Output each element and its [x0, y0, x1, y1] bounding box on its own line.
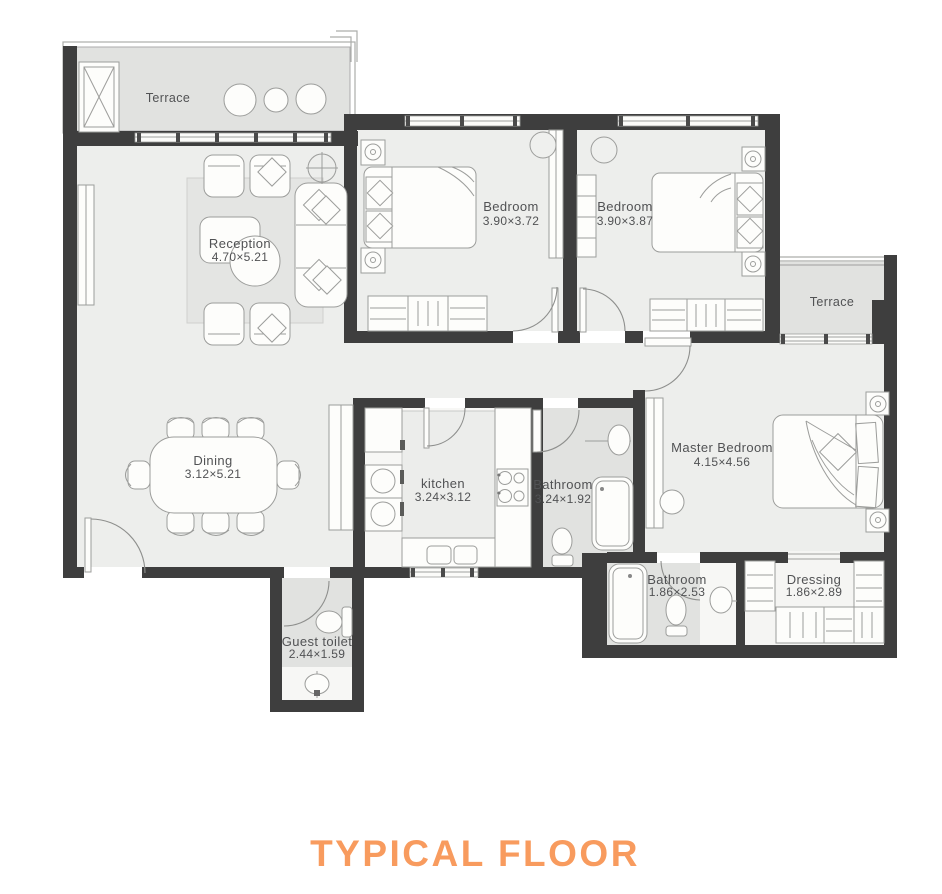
wardrobe — [854, 561, 884, 611]
toilet — [666, 595, 687, 636]
wardrobe — [776, 607, 884, 643]
bedroom1-window — [405, 116, 520, 126]
double-bed — [773, 415, 883, 508]
nightstand — [361, 140, 385, 165]
pouf — [660, 490, 684, 514]
kitchen-label: kitchen — [421, 476, 465, 491]
wardrobe — [745, 561, 775, 611]
terrace-left-label: Terrace — [146, 91, 190, 105]
nightstand — [361, 248, 385, 273]
dining-chair — [202, 511, 229, 536]
bedroom2-dims: 3.90×3.87 — [597, 214, 653, 228]
wardrobe — [650, 299, 763, 331]
double-bed — [364, 167, 476, 248]
dining-chair — [237, 511, 264, 536]
kitchen-sink — [402, 538, 495, 567]
master-bathroom-dims: 1.86×2.53 — [649, 585, 705, 599]
terrace-chair — [296, 84, 326, 114]
armchair — [204, 155, 244, 197]
sofa — [295, 183, 347, 307]
dressing-dims: 1.86×2.89 — [786, 585, 842, 599]
nightstand — [742, 147, 765, 171]
master-terrace-glazing — [780, 334, 872, 344]
reception-label: Reception — [209, 236, 271, 251]
kitchen-dims: 3.24×3.12 — [415, 490, 471, 504]
nightstand — [742, 252, 765, 276]
armchair — [250, 155, 290, 197]
wardrobe — [646, 398, 663, 528]
kitchen-window — [410, 568, 478, 577]
tall-wardrobe — [577, 175, 596, 257]
ceiling-fan-icon — [530, 132, 556, 158]
dining-chair — [167, 511, 194, 536]
washing-machine — [365, 465, 404, 498]
kitchen-cabinet — [365, 408, 402, 452]
dressing-opening — [788, 551, 840, 564]
toilet — [552, 528, 573, 566]
bathtub — [609, 564, 647, 643]
master-bedroom-label: Master Bedroom — [671, 440, 773, 455]
floor-plan: Terrace Reception 4.70×5.21 Bedroom 3.90… — [0, 0, 942, 894]
dining-dims: 3.12×5.21 — [185, 467, 241, 481]
bedroom2-window — [618, 116, 758, 126]
floor-plan-page: Terrace Reception 4.70×5.21 Bedroom 3.90… — [0, 0, 942, 894]
reception-dims: 4.70×5.21 — [212, 250, 268, 264]
wardrobe — [368, 296, 487, 331]
nightstand — [866, 509, 889, 532]
shaft-x-box — [79, 62, 119, 132]
bathroom-dims: 3.24×1.92 — [535, 492, 591, 506]
bathtub — [592, 477, 633, 550]
bedroom1-label: Bedroom — [483, 199, 539, 214]
nightstand — [866, 392, 889, 415]
armchair — [204, 303, 244, 345]
stove — [497, 469, 528, 506]
dining-chair — [126, 461, 151, 489]
kitchen-floor — [402, 411, 495, 538]
double-bed — [652, 173, 763, 252]
terrace-table — [264, 88, 288, 112]
terrace-right-label: Terrace — [810, 295, 854, 309]
bedroom1-dims: 3.90×3.72 — [483, 214, 539, 228]
bathroom-label: Bathroom — [533, 477, 593, 492]
dining-chair — [277, 461, 301, 489]
master-bedroom-dims: 4.15×4.56 — [694, 455, 750, 469]
reception-window — [135, 133, 331, 142]
armchair — [250, 303, 290, 345]
dining-label: Dining — [193, 453, 232, 468]
page-title: TYPICAL FLOOR — [310, 833, 640, 874]
bedroom2-label: Bedroom — [597, 199, 653, 214]
oven — [365, 498, 404, 531]
terrace-chair — [224, 84, 256, 116]
ceiling-fan-icon — [591, 137, 617, 163]
guest-toilet-dims: 2.44×1.59 — [289, 647, 345, 661]
